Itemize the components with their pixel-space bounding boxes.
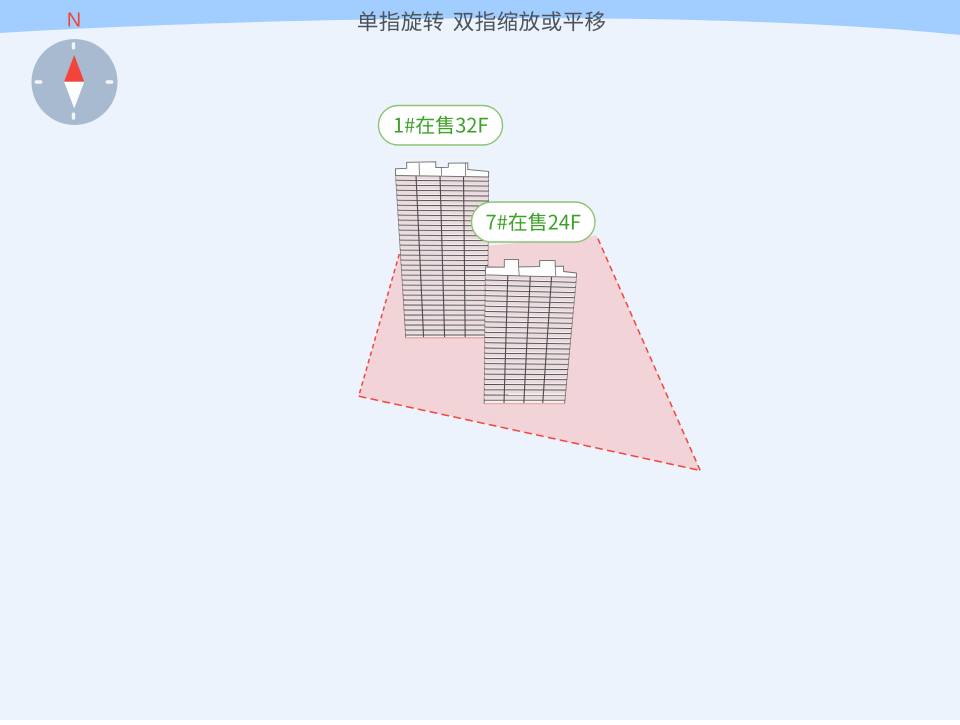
svg-text:N: N [67,10,81,32]
